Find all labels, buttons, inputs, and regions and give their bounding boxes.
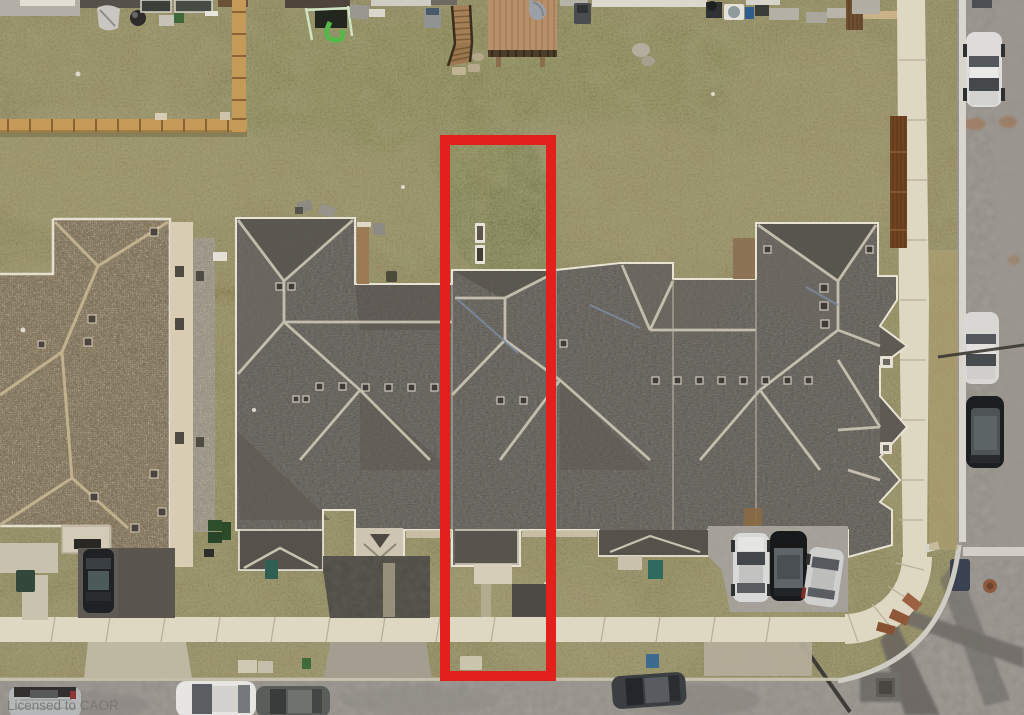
svg-text:Licensed to CAOR: Licensed to CAOR [7,698,119,713]
